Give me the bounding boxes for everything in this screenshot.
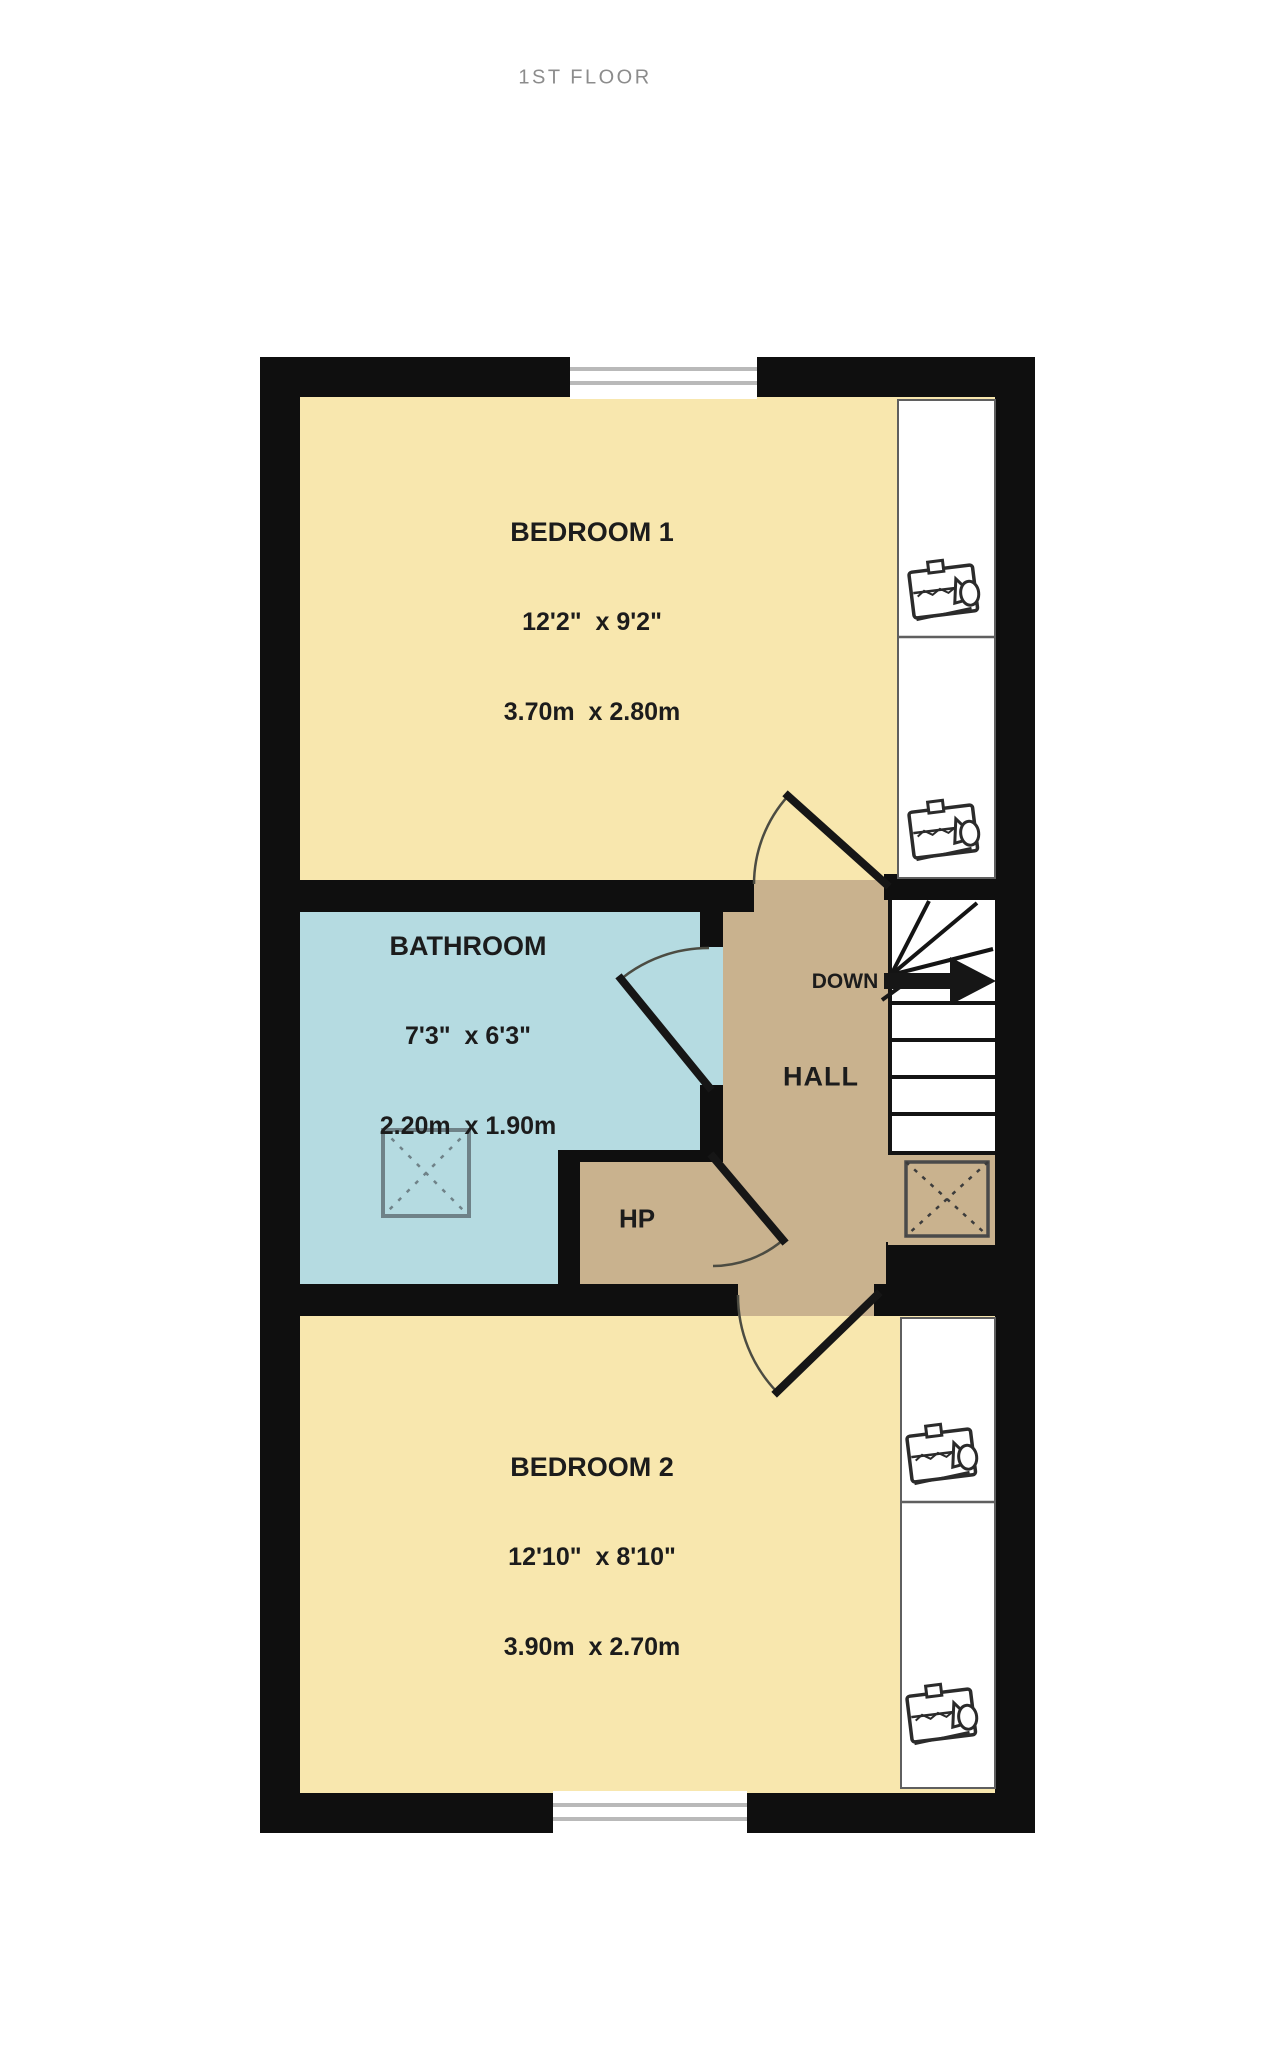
wall-bedroom2-left [260, 1284, 738, 1316]
hall-floor [723, 880, 890, 1316]
bedroom2-label: BEDROOM 2 12'10" x 8'10" 3.90m x 2.70m [504, 1392, 681, 1722]
wall-bedroom2-right [874, 1284, 1035, 1316]
bedroom1-doorway [754, 880, 884, 912]
bathroom-size-imperial: 7'3" x 6'3" [380, 1021, 557, 1051]
bedroom1-label: BEDROOM 1 12'2" x 9'2" 3.70m x 2.80m [504, 457, 681, 787]
stairs-down-label: DOWN [812, 970, 879, 994]
window-bottom [553, 1791, 747, 1835]
bedroom2-size-metric: 3.90m x 2.70m [504, 1632, 681, 1662]
staircase [882, 900, 996, 1245]
bathroom-name: BATHROOM [380, 931, 557, 961]
hall-label: HALL [783, 1062, 859, 1093]
bedroom1-right-strip [898, 400, 995, 878]
window-top-glass [570, 355, 757, 399]
floor-title: 1ST FLOOR [518, 67, 651, 90]
window-top [570, 355, 757, 399]
floorplan-svg [0, 0, 1280, 2064]
stair-well [888, 900, 995, 1155]
floorplan-canvas: 1ST FLOOR BEDROOM 1 12'2" x 9'2" 3.70m x… [0, 0, 1280, 2064]
hp-label: HP [619, 1204, 655, 1235]
window-bottom-glass [553, 1791, 747, 1835]
bathroom-label: BATHROOM 7'3" x 6'3" 2.20m x 1.90m [380, 871, 557, 1201]
bedroom1-size-imperial: 12'2" x 9'2" [504, 607, 681, 637]
bathroom-size-metric: 2.20m x 1.90m [380, 1111, 557, 1141]
bedroom2-name: BEDROOM 2 [504, 1452, 681, 1482]
wall-bathroom-hall-upper [700, 880, 723, 947]
wall-hp-left [558, 1150, 580, 1284]
bedroom2-right-strip [901, 1318, 995, 1788]
bedroom2-doorway [738, 1284, 874, 1316]
bedroom1-name: BEDROOM 1 [504, 517, 681, 547]
wall-under-stairs [886, 1242, 995, 1288]
wall-hp-top [558, 1150, 713, 1162]
bedroom2-size-imperial: 12'10" x 8'10" [504, 1542, 681, 1572]
bedroom1-size-metric: 3.70m x 2.80m [504, 697, 681, 727]
